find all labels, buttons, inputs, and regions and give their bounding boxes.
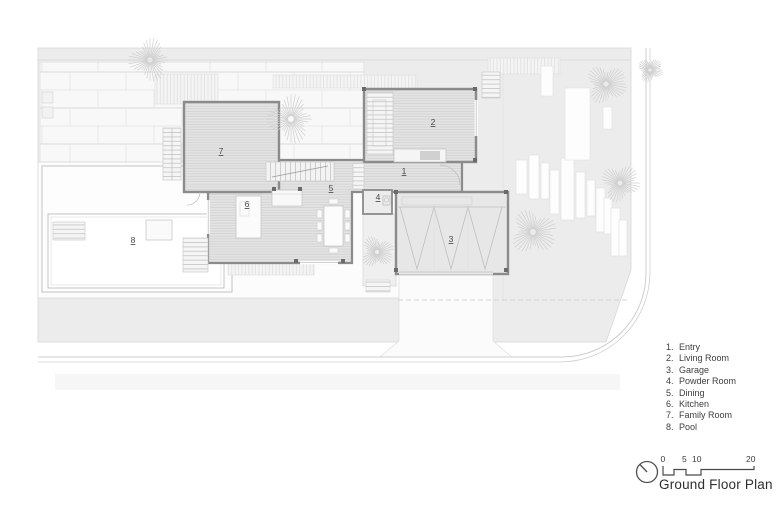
legend-label: Garage bbox=[679, 365, 709, 376]
legend-label: Kitchen bbox=[679, 399, 709, 410]
site-plan-drawing: 1 2 3 4 5 6 7 8 bbox=[0, 0, 780, 505]
legend-number: 4. bbox=[666, 376, 679, 387]
fireplace-box bbox=[420, 151, 440, 160]
legend-label: Entry bbox=[679, 342, 700, 353]
room-legend: 1.Entry 2.Living Room 3.Garage 4.Powder … bbox=[666, 342, 736, 433]
room-label-family: 7 bbox=[219, 146, 224, 156]
room-family bbox=[184, 102, 279, 192]
garden-planter bbox=[603, 107, 612, 129]
legend-label: Pool bbox=[679, 422, 697, 433]
room-label-dining: 5 bbox=[329, 183, 334, 193]
room-label-pool: 8 bbox=[131, 235, 136, 245]
pool-steps bbox=[53, 222, 85, 240]
legend-number: 8. bbox=[666, 422, 679, 433]
room-label-living: 2 bbox=[431, 117, 436, 127]
garden-planter bbox=[541, 66, 553, 96]
floor-plan-sheet: 1 2 3 4 5 6 7 8 1.Entry 2.Living Room 3.… bbox=[0, 0, 780, 505]
deck-stair-south bbox=[183, 238, 208, 272]
legend-item: 6.Kitchen bbox=[666, 399, 736, 410]
legend-number: 1. bbox=[666, 342, 679, 353]
entry-steps bbox=[353, 163, 364, 189]
legend-number: 5. bbox=[666, 388, 679, 399]
living-stair bbox=[367, 92, 393, 154]
deck-stair-east bbox=[482, 72, 500, 98]
dining-table bbox=[324, 206, 343, 246]
courtyard-steps bbox=[366, 280, 390, 292]
pool-spa bbox=[146, 220, 172, 240]
room-label-powder: 4 bbox=[376, 192, 381, 202]
legend-item: 8.Pool bbox=[666, 422, 736, 433]
legend-label: Living Room bbox=[679, 353, 729, 364]
garden-planter bbox=[565, 88, 590, 160]
planter-box bbox=[42, 107, 53, 118]
legend-item: 7.Family Room bbox=[666, 410, 736, 421]
legend-number: 3. bbox=[666, 365, 679, 376]
legend-label: Powder Room bbox=[679, 376, 736, 387]
room-garage bbox=[396, 192, 508, 274]
tree-icon bbox=[639, 60, 663, 83]
legend-item: 3.Garage bbox=[666, 365, 736, 376]
legend-item: 2.Living Room bbox=[666, 353, 736, 364]
legend-number: 7. bbox=[666, 410, 679, 421]
sofa bbox=[272, 190, 302, 206]
legend-item: 5.Dining bbox=[666, 388, 736, 399]
legend-item: 1.Entry bbox=[666, 342, 736, 353]
legend-item: 4.Powder Room bbox=[666, 376, 736, 387]
legend-number: 2. bbox=[666, 353, 679, 364]
room-label-kitchen: 6 bbox=[245, 199, 250, 209]
road-band bbox=[55, 374, 620, 390]
legend-label: Family Room bbox=[679, 410, 732, 421]
room-label-entry: 1 bbox=[402, 166, 407, 176]
planter-box bbox=[42, 92, 53, 103]
legend-number: 6. bbox=[666, 399, 679, 410]
legend-label: Dining bbox=[679, 388, 705, 399]
room-label-garage: 3 bbox=[449, 234, 454, 244]
